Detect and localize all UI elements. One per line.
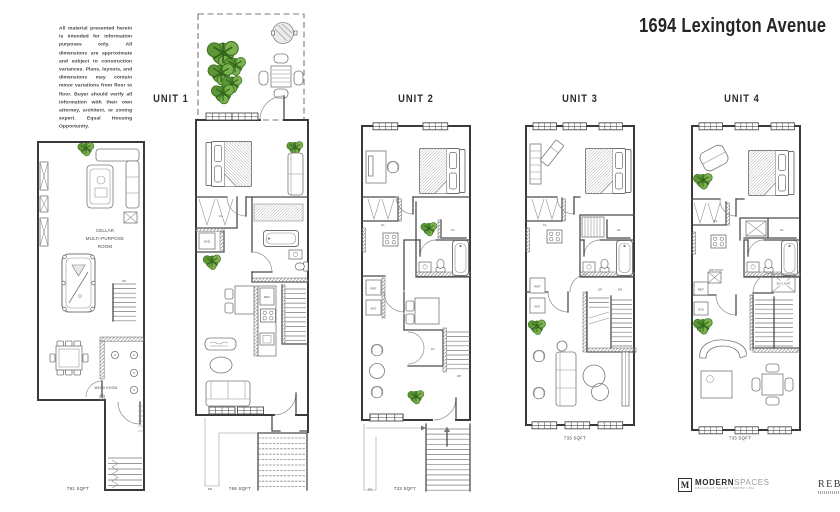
- unit1-label: UNIT 1: [144, 93, 198, 105]
- unit2-label: UNIT 2: [389, 93, 443, 105]
- closet-label: CL: [219, 214, 223, 218]
- toilet: [600, 259, 609, 272]
- modernspaces-logo: M MODERNSPACES EXCLUSIVE SALES + MARKETI…: [678, 478, 803, 493]
- closet-label: CL: [451, 228, 455, 232]
- bathroom: [583, 240, 633, 276]
- coffee-table: [210, 357, 232, 373]
- stove: [711, 235, 726, 248]
- washer-dryer: W/D: [694, 302, 708, 315]
- cellar-sofa: [96, 149, 139, 223]
- hall-door: [548, 292, 568, 312]
- stoop-stairs: [426, 424, 470, 491]
- closet-label: CL: [780, 228, 784, 232]
- window: [238, 407, 264, 414]
- closet-label: CL: [714, 219, 718, 223]
- pool-table: [62, 254, 96, 312]
- cellar-corridor: [108, 402, 143, 488]
- bedroom-sofa: [288, 153, 303, 195]
- modernspaces-name-light: SPACES: [734, 478, 769, 487]
- bathtub: [264, 231, 299, 247]
- window: [370, 414, 403, 421]
- lounge-chair: [533, 387, 545, 399]
- sink: [747, 262, 759, 272]
- unit3-label: UNIT 3: [553, 93, 607, 105]
- living-sofa: [556, 352, 576, 406]
- hall-door: [716, 295, 736, 315]
- kitchen: REF: [254, 286, 276, 356]
- modernspaces-tagline: EXCLUSIVE SALES + MARKETING: [695, 487, 754, 490]
- patio-table: [259, 54, 303, 98]
- stoop-stairs: [258, 433, 307, 490]
- cellar-windows: [40, 162, 48, 246]
- cellar-stairs: UP: [113, 279, 136, 321]
- toilet: [764, 259, 773, 272]
- unit1-floorplan: CL W/D REF: [193, 10, 311, 508]
- round-table: [557, 341, 567, 351]
- closet: CL: [368, 199, 394, 227]
- washer-dryer-label: W/D: [698, 307, 704, 311]
- dining-table: [752, 364, 793, 405]
- plant-icon: [203, 255, 220, 270]
- mech-room: MECH ROOM: [86, 337, 144, 400]
- unit1-sqft: 769 SQFT: [229, 486, 251, 491]
- washer-dryer-label: W/D: [204, 240, 210, 244]
- window: [563, 123, 586, 130]
- bathtub: [617, 241, 633, 276]
- cabinet: [622, 352, 629, 406]
- toilet: [295, 262, 308, 271]
- lounge-chair: [371, 344, 383, 356]
- unit1-patio: [198, 14, 304, 120]
- window: [206, 113, 232, 120]
- bathtub: [782, 241, 798, 276]
- cellar-room-label: CELLAR: [96, 228, 114, 233]
- washer-dryer-label: W/D: [534, 304, 540, 308]
- window: [699, 427, 722, 434]
- front-walkway: DN: [364, 424, 426, 492]
- closet-label: CL: [381, 223, 385, 227]
- refrigerator: REF: [694, 282, 708, 295]
- window: [599, 123, 622, 130]
- side-table: [592, 384, 609, 401]
- up-label: UP: [598, 288, 602, 292]
- window: [735, 123, 758, 130]
- desk: [540, 140, 564, 167]
- plant-icon: [78, 143, 94, 156]
- down-label: DN: [208, 487, 213, 491]
- window: [373, 123, 398, 130]
- plant-icon: [528, 320, 545, 335]
- lounge-area: [370, 344, 385, 398]
- round-table: [370, 364, 385, 379]
- cellar-rug: [87, 165, 113, 208]
- skylight-label: SKYLIGHT: [777, 283, 791, 286]
- console-table: [205, 338, 236, 350]
- closet: CL: [694, 203, 720, 223]
- hanging-closet: [582, 217, 604, 237]
- washer-dryer: W/D: [366, 300, 381, 315]
- up-label: UP: [457, 374, 461, 378]
- interior-stairs: UP: [447, 332, 470, 378]
- sink: [289, 250, 302, 259]
- modernspaces-logo-mark: M: [678, 478, 692, 492]
- bathroom: [747, 240, 798, 276]
- stove: [383, 233, 398, 246]
- stove: [261, 309, 276, 322]
- plant-icon: [693, 318, 712, 334]
- grill: [272, 23, 298, 44]
- rebny-logo: REBNY®: [818, 479, 840, 494]
- hall-door: [384, 292, 404, 312]
- unit2-floorplan: CL CL REF W/D CL UP: [358, 122, 474, 508]
- unit4-label: UNIT 4: [715, 93, 769, 105]
- hanging-closet: [254, 204, 303, 221]
- disclaimer-text: All material presented herein is intende…: [59, 24, 132, 130]
- desk: [701, 371, 732, 398]
- closet-label: CL: [617, 228, 621, 232]
- closet-label: CL: [543, 223, 547, 227]
- refrigerator-label: REF: [534, 284, 540, 288]
- stove: [547, 230, 562, 243]
- desk: [366, 151, 399, 183]
- refrigerator: REF: [366, 280, 381, 295]
- unit4-sqft: 733 SQFT: [729, 436, 751, 441]
- unit3-floorplan: CL CL REF W/D UP DN: [522, 122, 638, 444]
- washer-dryer-label: W/D: [370, 306, 376, 310]
- down-label: DN: [368, 488, 373, 492]
- living-sofa: [206, 381, 250, 406]
- plant-icon: [408, 391, 424, 404]
- interior-stairs: [282, 285, 306, 344]
- toilet: [436, 259, 445, 272]
- lounge-chair: [533, 350, 545, 362]
- cellar-room-label: MULTI-PURPOSE: [86, 236, 124, 241]
- footer-logos: M MODERNSPACES EXCLUSIVE SALES + MARKETI…: [678, 478, 840, 495]
- closet-label: CL: [431, 347, 435, 351]
- wd-hookup-label: W/D HKUP: [709, 269, 723, 272]
- down-label: DN: [618, 288, 622, 292]
- entry-door: [434, 398, 456, 420]
- bathtub: [453, 241, 469, 276]
- plant-icon: [421, 223, 437, 236]
- window: [598, 422, 623, 429]
- sink: [583, 262, 595, 272]
- entry-door: [274, 393, 296, 415]
- bathroom: [252, 204, 308, 272]
- window: [565, 422, 590, 429]
- window: [532, 422, 557, 429]
- window: [423, 123, 448, 130]
- bed: [749, 151, 795, 196]
- refrigerator-label: REF: [264, 295, 270, 299]
- refrigerator-label: REF: [370, 286, 376, 290]
- shelf-unit: [530, 144, 541, 184]
- tree-icon: [211, 85, 234, 104]
- bathroom: [419, 240, 469, 276]
- page-title: 1694 Lexington Avenue: [639, 15, 826, 38]
- plant-icon: [693, 173, 712, 189]
- hall-closet: CL: [408, 332, 435, 364]
- curved-sofa: [700, 340, 746, 358]
- cellar-sqft: 791 SQFT: [67, 486, 89, 491]
- bed: [586, 149, 632, 194]
- cellar-floorplan: CELLAR MULTI-PURPOSE ROOM UP MECH ROOM: [33, 138, 148, 506]
- modernspaces-name-bold: MODERN: [695, 478, 734, 487]
- rebny-name: REBNY: [818, 479, 840, 490]
- dining-table: [406, 298, 439, 324]
- window: [533, 123, 556, 130]
- dining-table: [225, 286, 254, 314]
- bed: [206, 142, 252, 187]
- washer-dryer: W/D: [530, 298, 545, 313]
- unit3-sqft: 733 SQFT: [564, 436, 586, 441]
- lounge-chair: [698, 143, 730, 173]
- refrigerator: REF: [530, 278, 545, 293]
- front-walkway: DN: [205, 418, 258, 491]
- desk-chair: [387, 161, 399, 173]
- monitor: [369, 156, 374, 176]
- window: [771, 123, 794, 130]
- unit4-floorplan: CL CL W/D HKUP REF W/D SKYLIGHT: [688, 122, 804, 444]
- sink: [419, 262, 431, 272]
- patio-door: [260, 96, 284, 120]
- window: [768, 427, 791, 434]
- window: [232, 113, 258, 120]
- refrigerator-label: REF: [698, 287, 704, 291]
- up-label: UP: [122, 279, 127, 283]
- hall-closet: CL: [746, 221, 784, 236]
- cellar-room-label: ROOM: [98, 244, 113, 249]
- interior-stairs: UP DN: [570, 274, 632, 348]
- washer-dryer: W/D: [199, 233, 215, 249]
- bed: [420, 149, 466, 194]
- cellar-dining-table: [50, 341, 88, 375]
- window: [209, 407, 235, 414]
- rebny-tagline-bar: [818, 491, 840, 494]
- lounge-chair: [371, 386, 383, 398]
- window: [699, 123, 722, 130]
- mech-room-label: MECH ROOM: [95, 386, 118, 390]
- window: [735, 427, 758, 434]
- closet: CL: [532, 199, 558, 227]
- wd-hookup: W/D HKUP: [708, 269, 723, 283]
- unit2-sqft: 733 SQFT: [394, 486, 416, 491]
- modernspaces-name: MODERNSPACES: [695, 478, 803, 487]
